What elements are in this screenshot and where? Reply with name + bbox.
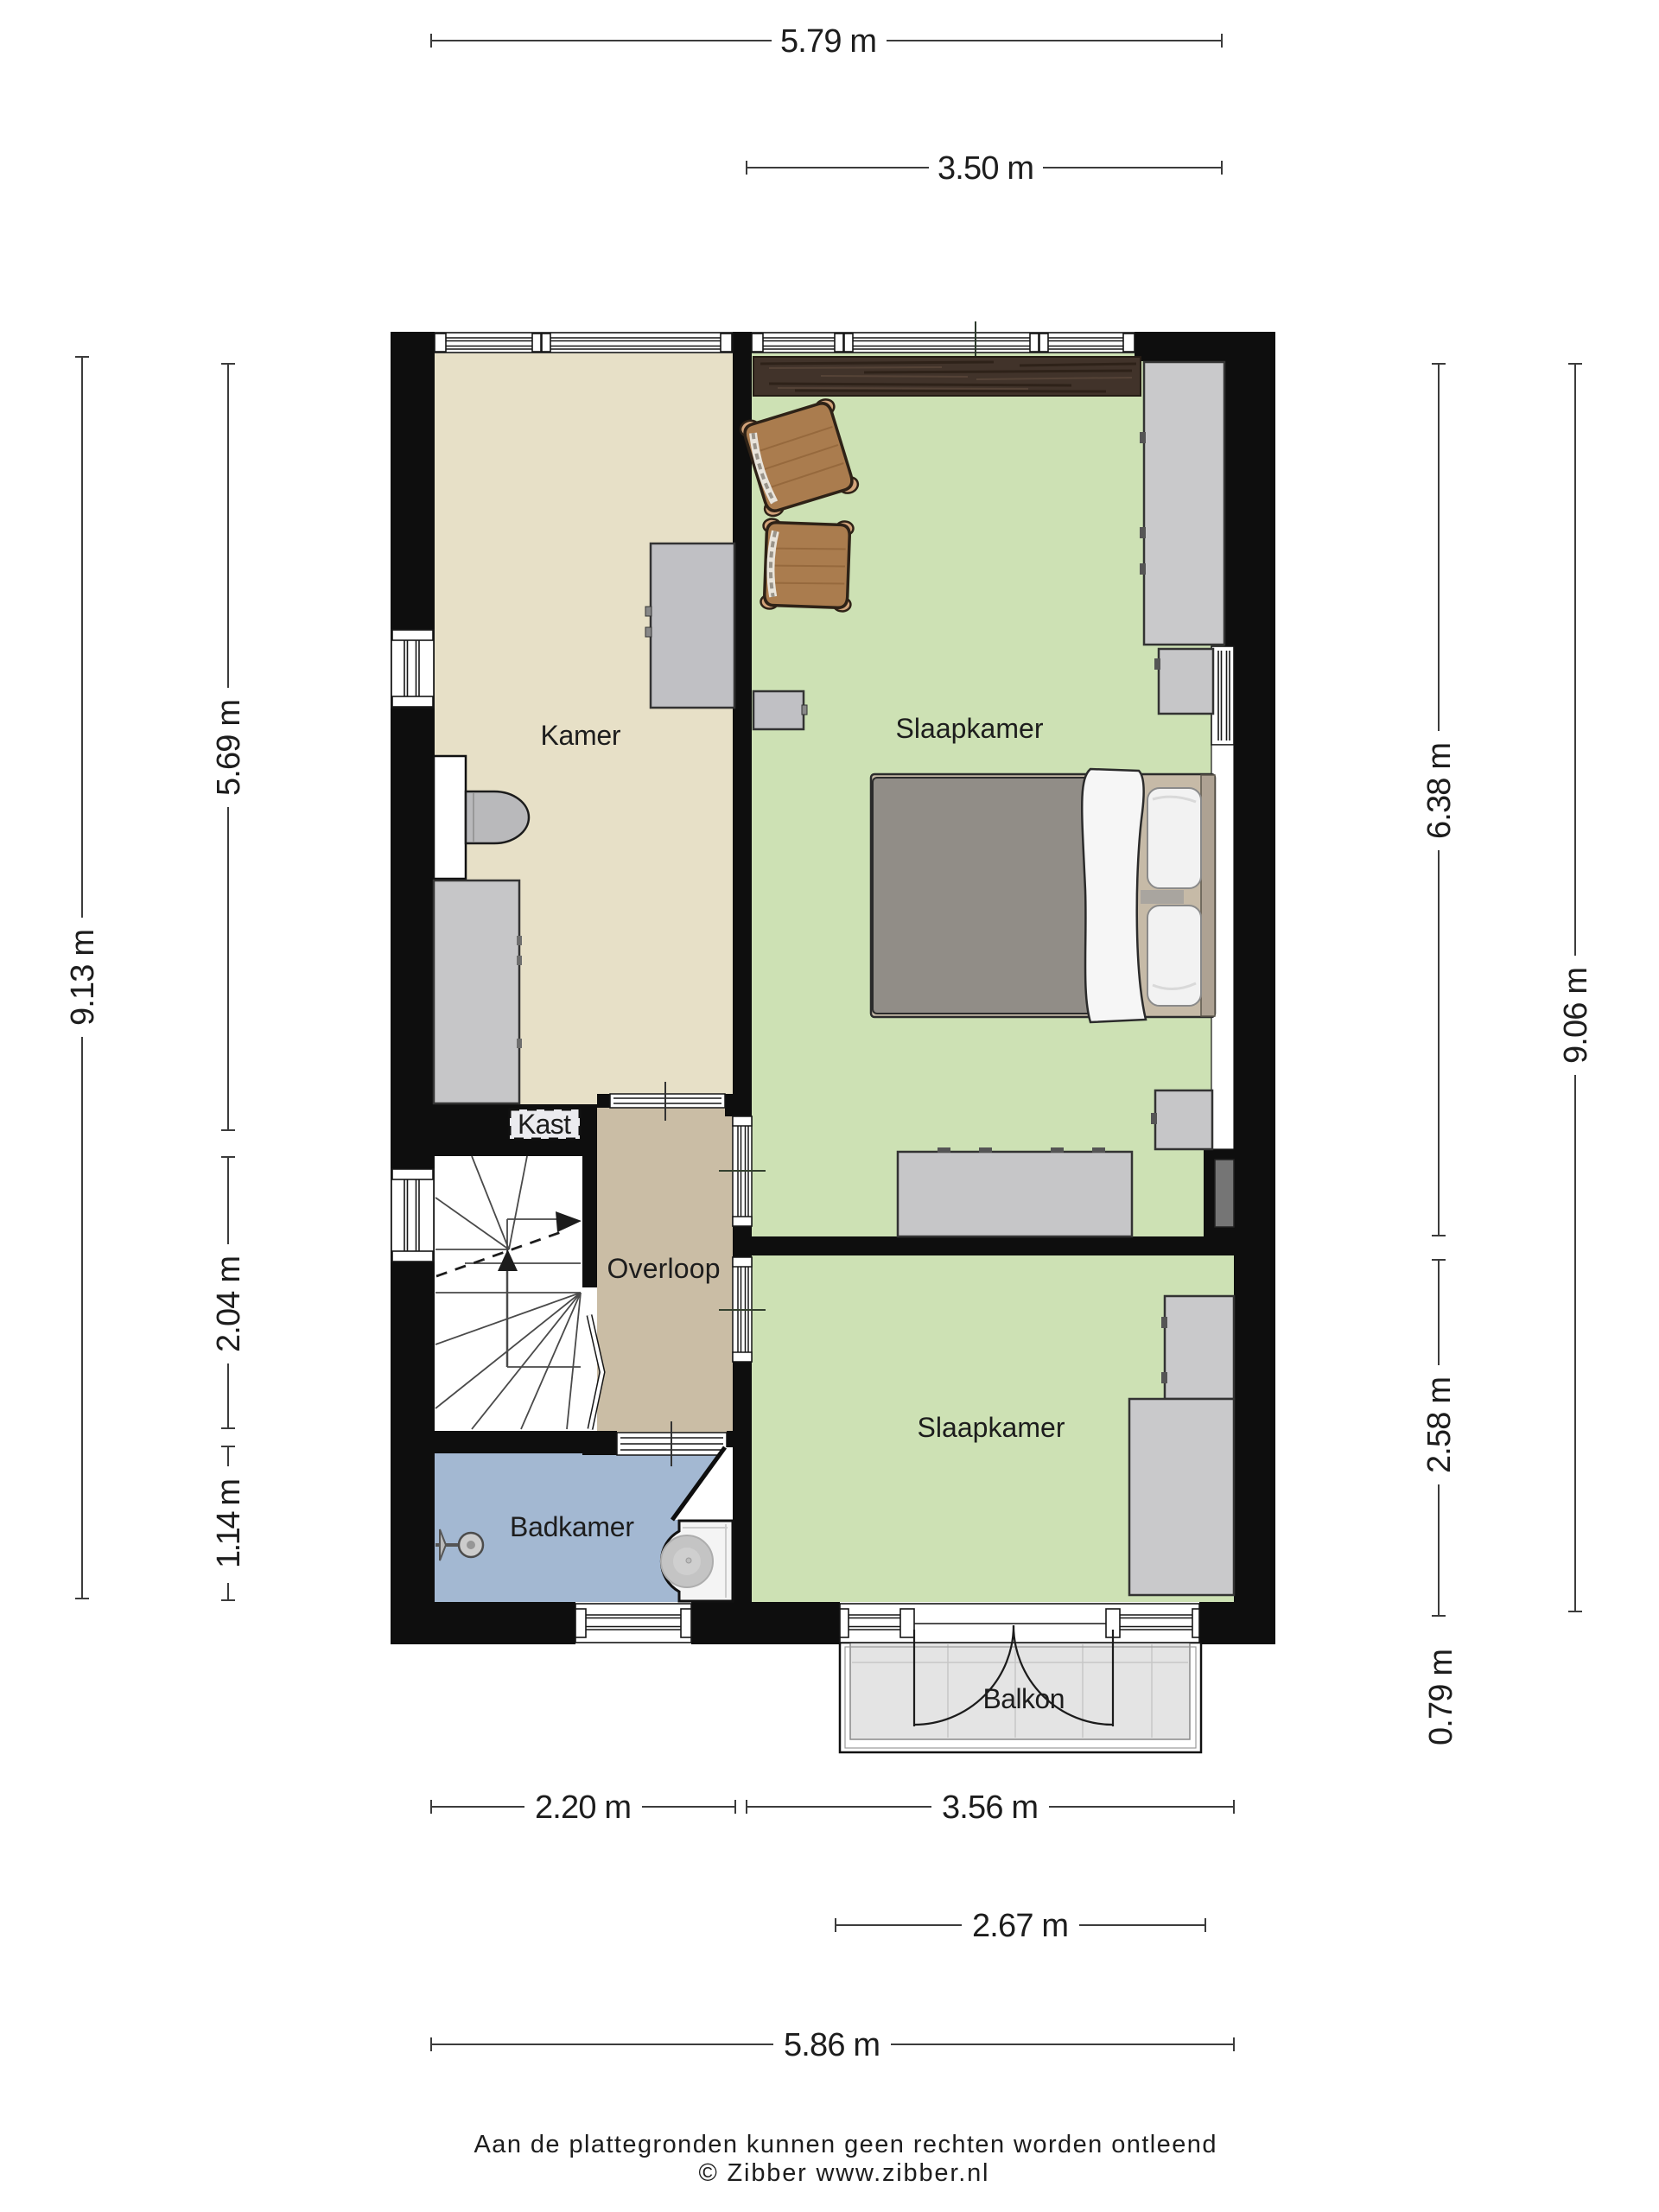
svg-text:Kamer: Kamer — [541, 720, 621, 751]
svg-text:Slaapkamer: Slaapkamer — [896, 713, 1044, 744]
svg-text:Badkamer: Badkamer — [510, 1511, 634, 1542]
svg-text:© Zibber www.zibber.nl: © Zibber www.zibber.nl — [699, 2159, 988, 2187]
svg-text:1.14 m: 1.14 m — [211, 1478, 247, 1568]
svg-text:2.20 m: 2.20 m — [535, 1789, 632, 1826]
svg-text:3.56 m: 3.56 m — [942, 1789, 1039, 1826]
svg-text:Kast: Kast — [518, 1109, 571, 1140]
svg-text:0.79 m: 0.79 m — [1423, 1649, 1459, 1745]
svg-text:6.38 m: 6.38 m — [1421, 742, 1458, 839]
svg-text:9.06 m: 9.06 m — [1558, 967, 1594, 1064]
svg-text:Aan de plattegronden kunnen ge: Aan de plattegronden kunnen geen rechten… — [474, 2131, 1217, 2158]
svg-text:2.04 m: 2.04 m — [211, 1255, 247, 1352]
svg-text:5.69 m: 5.69 m — [211, 699, 247, 796]
svg-text:5.79 m: 5.79 m — [780, 23, 877, 60]
svg-text:3.50 m: 3.50 m — [938, 150, 1034, 187]
svg-text:Balkon: Balkon — [983, 1683, 1065, 1714]
svg-text:2.58 m: 2.58 m — [1421, 1376, 1458, 1473]
svg-text:Slaapkamer: Slaapkamer — [918, 1412, 1065, 1443]
svg-text:Overloop: Overloop — [607, 1253, 721, 1284]
svg-text:5.86 m: 5.86 m — [784, 2027, 880, 2063]
svg-text:2.67 m: 2.67 m — [972, 1908, 1069, 1944]
svg-text:9.13 m: 9.13 m — [65, 929, 101, 1026]
